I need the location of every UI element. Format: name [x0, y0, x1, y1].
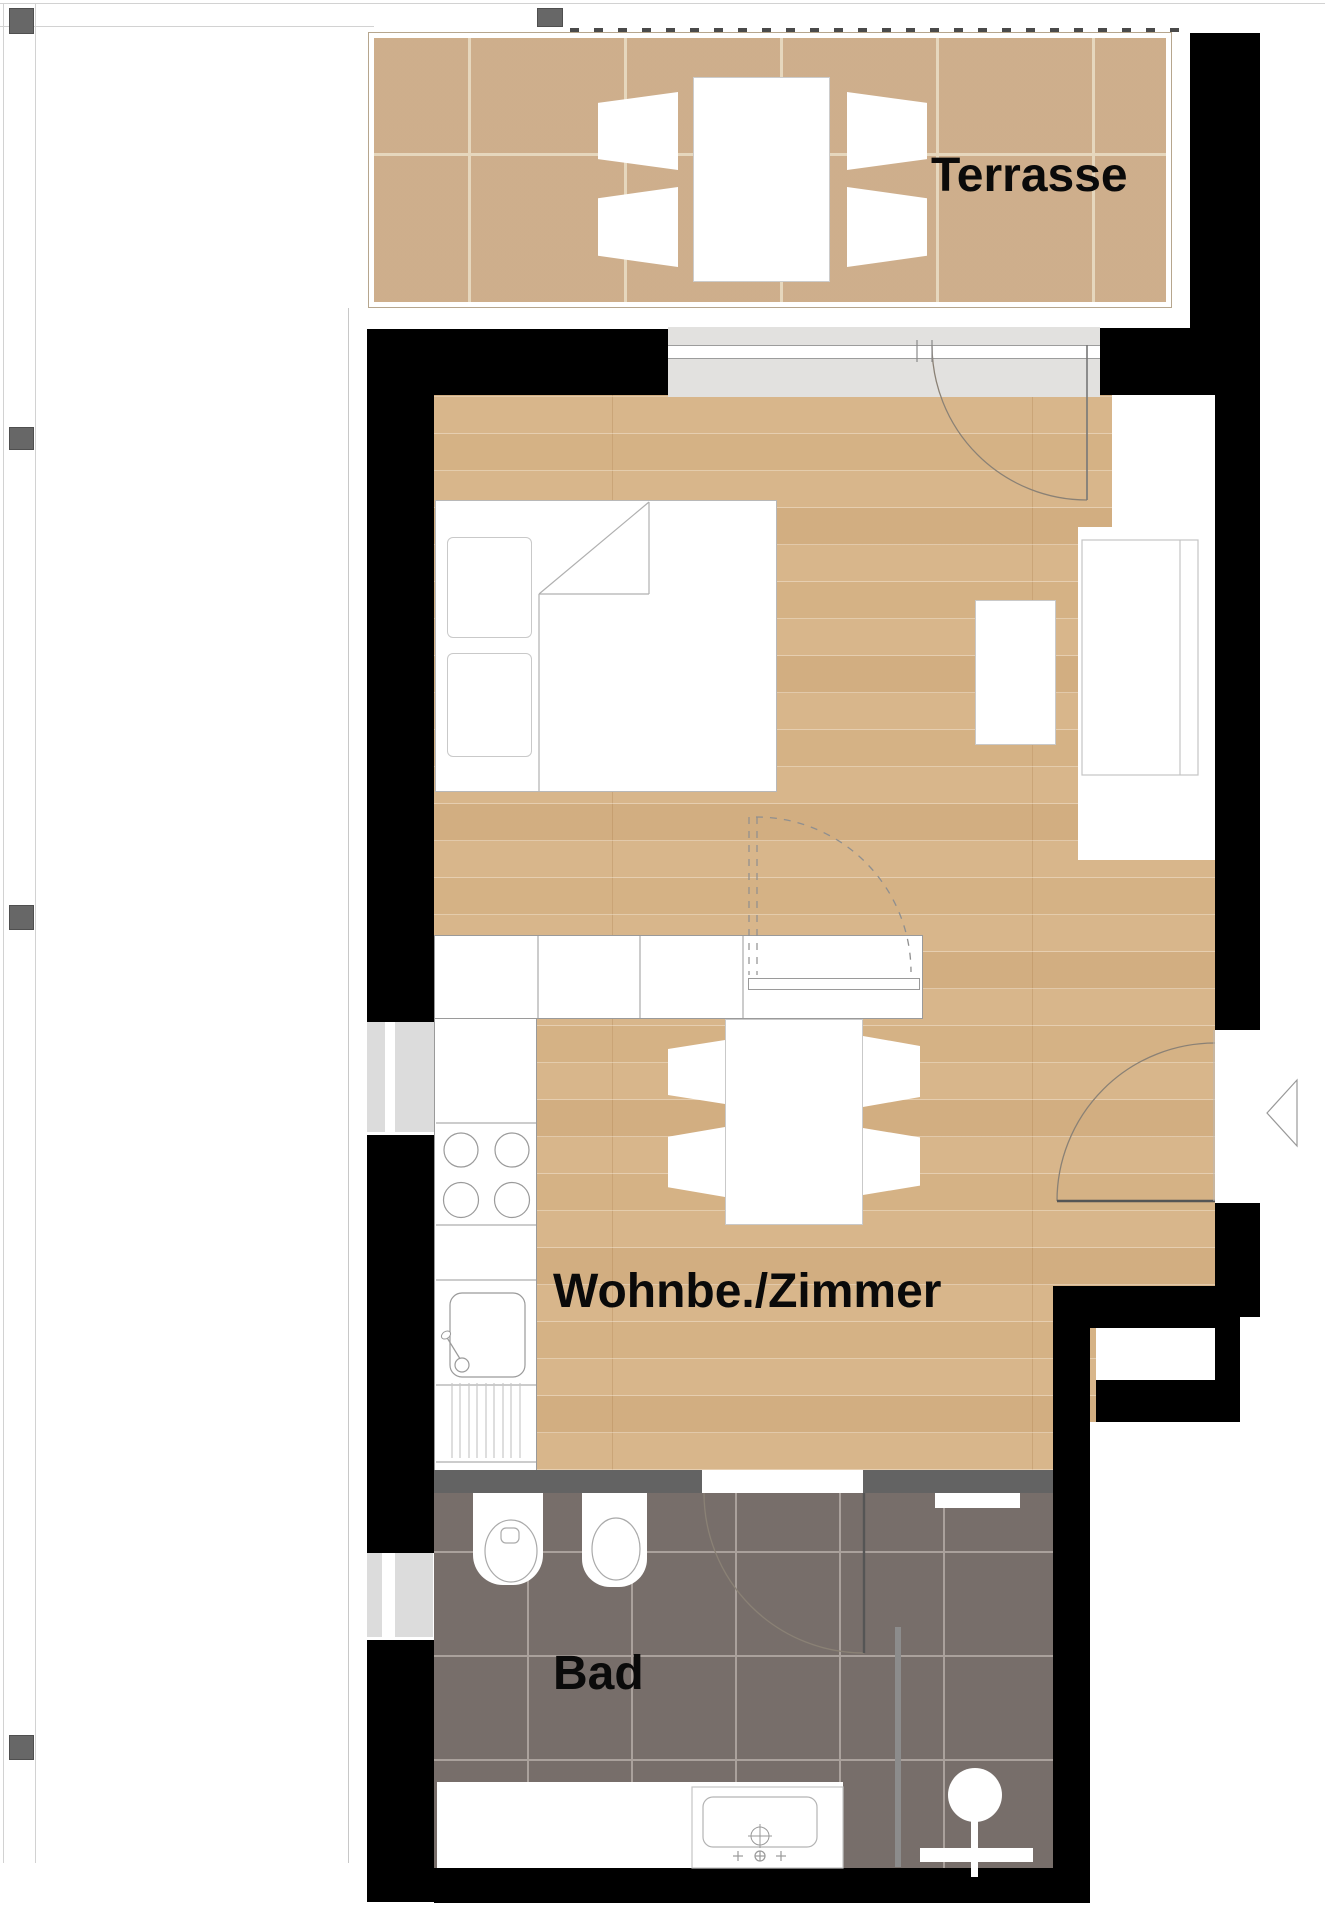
wall-left-lower [367, 1640, 434, 1902]
site-line-top-2 [0, 26, 374, 27]
toilet [473, 1493, 543, 1585]
terrace-chair [847, 187, 927, 267]
left-window-2-glass [395, 1553, 433, 1637]
bath-deck [437, 1782, 843, 1868]
pillow [447, 653, 532, 757]
column-marker [9, 1735, 34, 1760]
wall-terrace-right [1190, 33, 1260, 328]
bidet [582, 1493, 647, 1587]
side-table [975, 600, 1056, 745]
site-line-left-outer [3, 3, 4, 1863]
terrace-door-glazing [668, 345, 1100, 359]
dining-chair [668, 1127, 725, 1197]
counter-shelf-strip [748, 978, 920, 990]
column-marker [537, 8, 563, 27]
column-marker [9, 8, 34, 34]
exterior-cutout [1090, 1422, 1215, 1470]
dining-chair [668, 1040, 725, 1104]
terrace-table [693, 77, 830, 282]
wall-right-upper [1215, 328, 1260, 1030]
terrace-door-band [668, 327, 1100, 397]
sill-line [348, 308, 349, 1863]
wall-shaft-right [1215, 1328, 1240, 1380]
column-marker [9, 427, 34, 450]
kitchen-counter-side-run [434, 1018, 537, 1477]
wall-top-right [1100, 328, 1215, 395]
terrace-chair [598, 92, 678, 170]
sideboard [1078, 527, 1215, 860]
site-line-left-inner [35, 3, 36, 1863]
pillow [447, 537, 532, 638]
entrance-arrow-icon [1267, 1080, 1297, 1146]
terrace-label: Terrasse [931, 152, 1128, 200]
living-room-label: Wohnbe./Zimmer [553, 1268, 941, 1316]
wall-shaft-bottom [1096, 1380, 1240, 1422]
bathroom-partition-wall [863, 1470, 1053, 1493]
bathroom-shelf [935, 1493, 1020, 1508]
bathroom-partition-wall [434, 1470, 702, 1493]
wall-bath-right [1053, 1286, 1090, 1903]
kitchen-counter-top-run [434, 935, 923, 1019]
shaft-niche [1096, 1328, 1215, 1380]
closet-niche [1112, 387, 1215, 527]
dining-table [725, 1019, 863, 1225]
dining-chair [863, 1128, 920, 1195]
left-window-1-glass [395, 1022, 434, 1132]
floor-plan: Terrasse Wohnbe./Zimmer Bad [0, 0, 1325, 1920]
wall-bottom [434, 1868, 1090, 1903]
dining-chair [863, 1036, 920, 1107]
shower-glass-panel [895, 1627, 901, 1867]
left-window-2 [367, 1553, 382, 1637]
column-marker [9, 905, 34, 930]
terrace-chair [847, 92, 927, 170]
left-window-1 [367, 1022, 385, 1132]
wall-left-middle [367, 1135, 434, 1553]
terrace-chair [598, 187, 678, 267]
wall-left-upper [367, 329, 434, 1022]
bathroom-label: Bad [553, 1650, 644, 1698]
site-line-top [0, 3, 1325, 4]
